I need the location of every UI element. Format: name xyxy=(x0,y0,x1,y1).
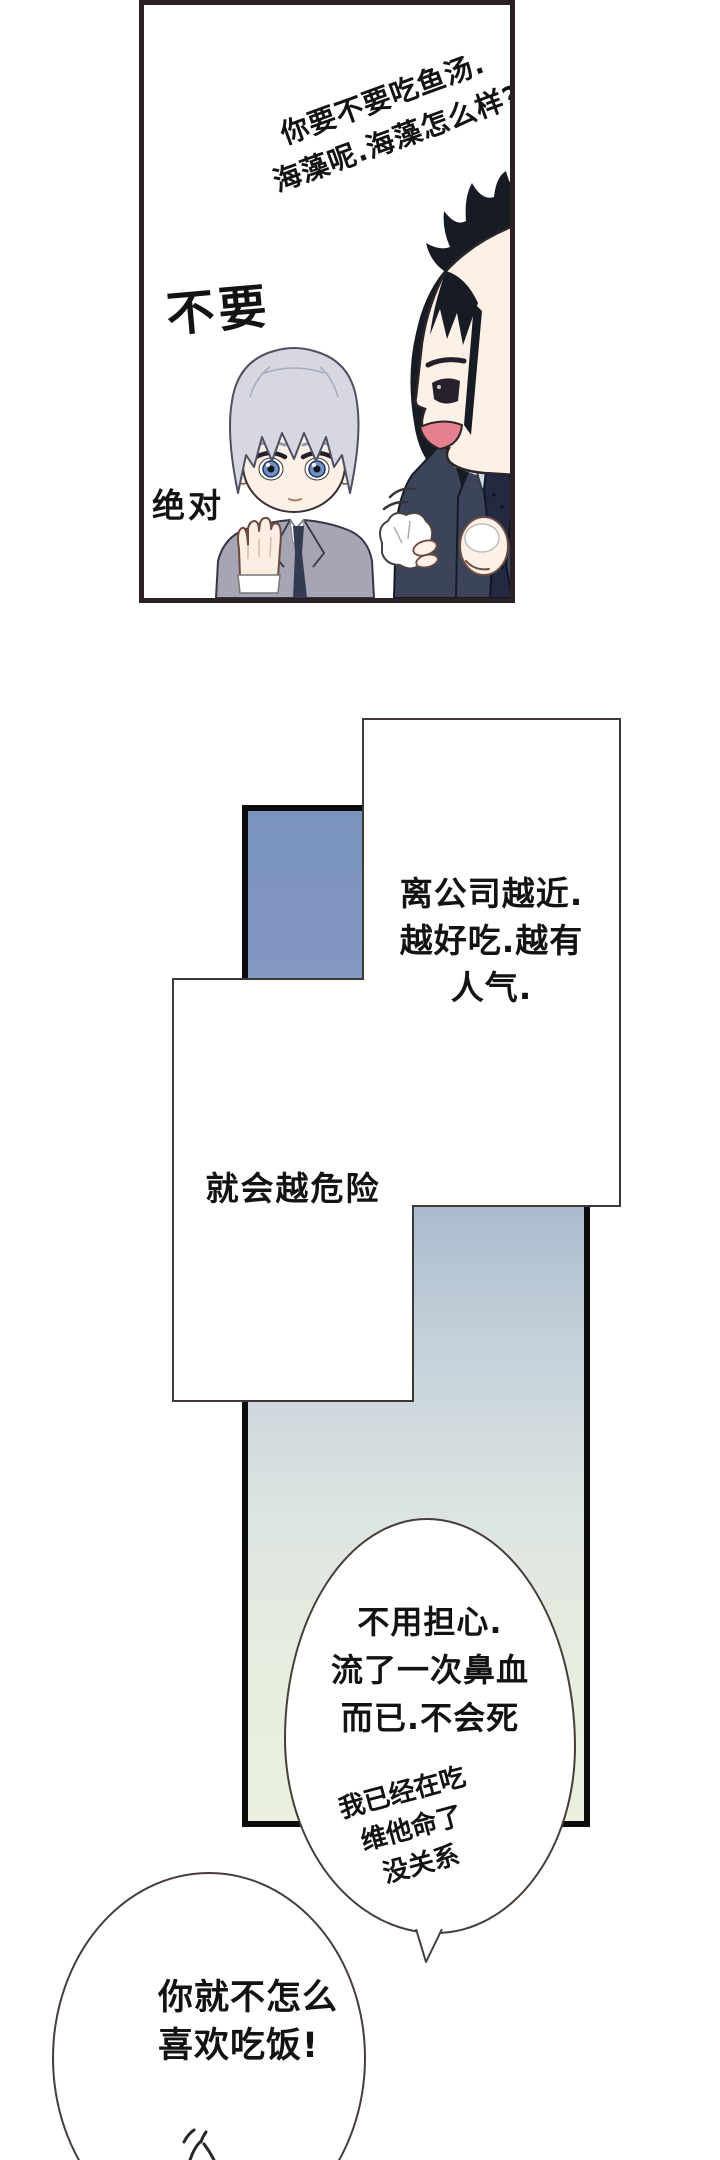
eye xyxy=(432,378,460,403)
near-company-line-2: 越好吃.越有 xyxy=(362,917,621,964)
dont-worry-line-1: 不用担心. xyxy=(286,1598,574,1646)
bubble1-bottom-edge xyxy=(412,1205,621,1207)
danger-text: 就会越危险 xyxy=(172,1162,414,1210)
bubble-tail-icon xyxy=(414,1929,444,1965)
near-company-text: 离公司越近. 越好吃.越有 人气. xyxy=(362,870,621,1011)
reply-no-text: 不要 xyxy=(163,267,273,346)
comic-page: 你要不要吃鱼汤. 海藻呢.海藻怎么样? 不要 绝对 离公司越近. 越好吃.越有 … xyxy=(0,0,720,2160)
box-right-edge xyxy=(412,1205,414,1402)
bubble1-top-edge xyxy=(362,718,621,720)
silver-hair-character xyxy=(216,348,374,598)
eat-line-2: 喜欢吃饭! xyxy=(158,2022,338,2070)
anger-mark-icon xyxy=(174,2122,226,2160)
dont-worry-line-2: 流了一次鼻血 xyxy=(286,1646,574,1694)
dont-worry-line-3: 而已.不会死 xyxy=(286,1694,574,1742)
box-bottom-edge xyxy=(172,1400,414,1402)
eye-glint xyxy=(437,385,441,389)
panel-top: 你要不要吃鱼汤. 海藻呢.海藻怎么样? 不要 绝对 xyxy=(139,0,515,603)
dont-worry-text: 不用担心. 流了一次鼻血 而已.不会死 xyxy=(286,1598,574,1742)
speech-bubble-eat: 你就不怎么 喜欢吃饭! xyxy=(52,1872,366,2160)
black-hair-character xyxy=(380,171,510,598)
gauze-icon xyxy=(465,524,499,552)
reply-absolutely-text: 绝对 xyxy=(152,479,224,527)
eat-line-1: 你就不怎么 xyxy=(158,1974,338,2022)
near-company-line-3: 人气. xyxy=(362,964,621,1011)
near-company-line-1: 离公司越近. xyxy=(362,870,621,917)
cuff xyxy=(238,575,280,593)
eat-text: 你就不怎么 喜欢吃饭! xyxy=(158,1974,338,2070)
vitamins-text: 我已经在吃 维他命了 没关系 xyxy=(301,1750,523,1909)
box-top-edge xyxy=(172,978,364,980)
